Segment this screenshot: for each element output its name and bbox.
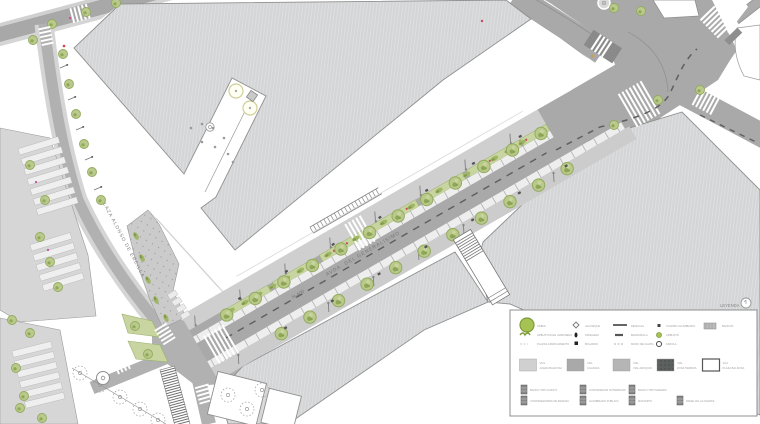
svg-text:ACERA BALDOSA: ACERA BALDOSA: [540, 366, 563, 370]
svg-text:CUADRO ALUMBRADO: CUADRO ALUMBRADO: [666, 324, 695, 328]
svg-text:CONTENEDOR SOTERRADO: CONTENEDOR SOTERRADO: [589, 388, 626, 392]
svg-text:VIAL: VIAL: [723, 361, 729, 365]
svg-text:BANCO TIPO MADERA: BANCO TIPO MADERA: [638, 388, 667, 392]
svg-text:BANCOS: BANCOS: [722, 324, 734, 328]
svg-text:VIAL: VIAL: [633, 361, 639, 365]
svg-text:ARBUSTO: ARBUSTO: [666, 333, 679, 337]
svg-text:ARBOL: ARBOL: [537, 324, 547, 328]
svg-text:FAROLA: FAROLA: [666, 342, 677, 346]
svg-text:ALCORQUE: ALCORQUE: [585, 324, 600, 328]
svg-text:VIAL: VIAL: [677, 361, 683, 365]
svg-text:MURO DE CHAPA: MURO DE CHAPA: [631, 342, 654, 346]
svg-text:MUPI/OPIS: MUPI/OPIS: [638, 399, 652, 403]
svg-text:CALZADA: CALZADA: [587, 366, 600, 370]
svg-text:PERGOLA: PERGOLA: [631, 324, 644, 328]
svg-text:CONTENEDORES DE BASURA: CONTENEDORES DE BASURA: [530, 399, 569, 403]
svg-text:PANEL DE LA FUENTE: PANEL DE LA FUENTE: [686, 399, 715, 403]
svg-text:PAPELERA: PAPELERA: [585, 333, 599, 337]
svg-text:ZONA TERRIZA: ZONA TERRIZA: [677, 366, 697, 370]
svg-text:PLAZA BALDOSA: PLAZA BALDOSA: [723, 366, 745, 370]
svg-text:BANCO TIPO GODOT: BANCO TIPO GODOT: [530, 388, 557, 392]
svg-text:VIAL ADOQUIN: VIAL ADOQUIN: [633, 366, 652, 370]
svg-text:LEYENDA: LEYENDA: [720, 303, 740, 308]
svg-text:VIAL: VIAL: [540, 361, 546, 365]
svg-text:ALUMBRADO PUBLICO: ALUMBRADO PUBLICO: [589, 399, 619, 403]
svg-text:BOLARDO: BOLARDO: [585, 342, 598, 346]
svg-text:PLAZAS APARCAMIENTO: PLAZAS APARCAMIENTO: [537, 342, 569, 346]
svg-text:ARBUSTOS EN JARDINERA: ARBUSTOS EN JARDINERA: [537, 333, 572, 337]
svg-text:VIAL: VIAL: [587, 361, 593, 365]
svg-text:BARANDILLA: BARANDILLA: [631, 333, 648, 337]
